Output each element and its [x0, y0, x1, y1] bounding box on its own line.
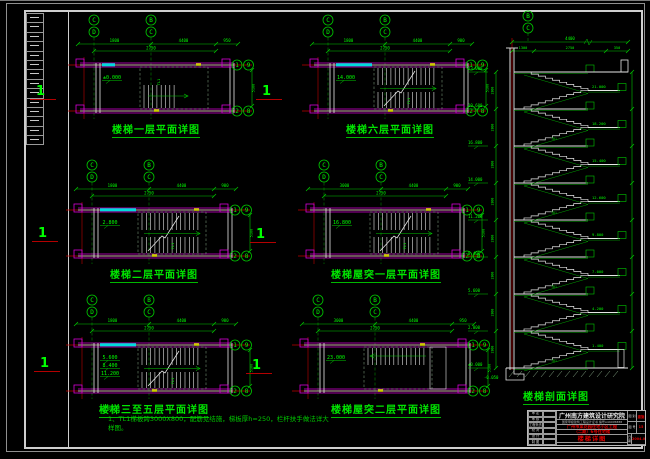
svg-text:5100: 5100: [252, 84, 256, 93]
drawing-title: 楼梯详图: [557, 435, 627, 443]
strip-cell: [26, 23, 44, 32]
cut-line: [250, 242, 276, 243]
svg-text:1: 1: [235, 62, 239, 69]
strip-cell: [26, 42, 44, 51]
svg-text:C: C: [92, 17, 96, 24]
field-label: 图 号: [628, 422, 636, 432]
svg-text:C: C: [326, 17, 330, 24]
svg-text:5.600: 5.600: [468, 288, 481, 293]
cut-line: [256, 99, 282, 100]
svg-text:14.000: 14.000: [468, 177, 483, 182]
notes-line: 1、TL1梯板跨3000X800，配筋见结施，梯板厚h=250，栏杆扶手做法详大…: [100, 415, 330, 435]
svg-text:D: D: [316, 309, 320, 316]
strip-cell: [26, 13, 44, 23]
svg-text:14.000: 14.000: [337, 75, 355, 81]
svg-text:2800: 2800: [491, 346, 495, 354]
svg-text:D: D: [326, 29, 330, 36]
strip-cell: [26, 108, 44, 117]
svg-text:7.000: 7.000: [592, 269, 604, 274]
svg-text:D: D: [322, 174, 326, 181]
annotations: TL1±0.000: [102, 63, 201, 112]
svg-text:C: C: [373, 309, 377, 316]
cut-line: [34, 371, 60, 372]
svg-text:2800: 2800: [491, 161, 495, 169]
svg-text:TB1: TB1: [551, 137, 557, 141]
svg-text:8.400: 8.400: [468, 251, 481, 256]
cut-number: 1: [252, 358, 261, 373]
revision-strip: [26, 13, 42, 145]
section-title: 楼梯剖面详图: [466, 388, 646, 403]
section-cut-mark: 1: [30, 86, 56, 104]
svg-text:TL1: TL1: [407, 98, 411, 105]
svg-text:2800: 2800: [491, 124, 495, 132]
svg-text:9.800: 9.800: [592, 232, 604, 237]
svg-text:1800: 1800: [110, 38, 120, 43]
plan-title: 楼梯六层平面详图: [290, 126, 490, 137]
cut-number: 1: [262, 84, 271, 99]
svg-text:21.000: 21.000: [592, 84, 606, 89]
plan-sixth-floor-drawing: 1800440090027505100TL114.000CDBC1928: [290, 13, 490, 125]
plan-sixth-floor: 1800440090027505100TL114.000CDBC1928 楼梯六…: [290, 13, 490, 137]
svg-text:2.800: 2.800: [102, 220, 117, 226]
svg-text:19.600: 19.600: [468, 103, 483, 108]
svg-text:D: D: [90, 174, 94, 181]
svg-text:4400: 4400: [565, 36, 575, 41]
notes-heading: 说明：: [100, 404, 330, 415]
strip-cell: [26, 117, 44, 126]
svg-text:C: C: [90, 162, 94, 169]
strip-cell: [26, 61, 44, 70]
svg-text:1800: 1800: [108, 318, 118, 323]
svg-text:900: 900: [221, 183, 229, 188]
svg-text:350: 350: [614, 46, 621, 50]
svg-text:2800: 2800: [491, 309, 495, 317]
svg-text:11.200: 11.200: [101, 371, 119, 377]
svg-text:2750: 2750: [144, 326, 154, 331]
section-cut-mark: 1: [32, 228, 58, 246]
section-cut-mark: 1: [256, 86, 282, 104]
section-cut-mark: 1: [246, 360, 272, 378]
grid-bubbles: CDBC1928: [319, 160, 484, 261]
strip-cell: [26, 33, 44, 42]
cut-line: [30, 99, 56, 100]
field-value: 2004.07: [631, 434, 645, 444]
field-value: 建施: [636, 411, 645, 421]
svg-text:8: 8: [247, 108, 251, 115]
svg-text:2750: 2750: [144, 191, 154, 196]
svg-text:900: 900: [453, 183, 461, 188]
grid-lines: [292, 318, 488, 400]
svg-text:B: B: [373, 297, 377, 304]
svg-text:3000: 3000: [340, 183, 350, 188]
svg-text:8: 8: [245, 388, 249, 395]
plan-roof2-floor: 300044009502750510023.000CDBC1928 楼梯屋突二层…: [280, 293, 492, 417]
window-top-edge: [0, 0, 650, 1]
svg-text:18.200: 18.200: [592, 121, 606, 126]
signature-cell: [543, 439, 556, 445]
plan-roof1-floor: 3000440090027505100TL116.800CDBC1928 楼梯屋…: [286, 158, 486, 282]
general-notes: 说明： 1、TL1梯板跨3000X800，配筋见结施，梯板厚h=250，栏杆扶手…: [100, 404, 330, 434]
svg-text:9: 9: [245, 342, 249, 349]
svg-text:2750: 2750: [146, 46, 156, 51]
svg-text:C: C: [322, 162, 326, 169]
svg-text:2750: 2750: [376, 191, 386, 196]
svg-text:900: 900: [457, 38, 465, 43]
plan-roof1-drawing: 3000440090027505100TL116.800CDBC1928: [286, 158, 486, 270]
plan-title: 楼梯一层平面详图: [56, 126, 256, 137]
svg-text:B: B: [383, 17, 387, 24]
svg-text:5.600: 5.600: [102, 355, 117, 361]
svg-text:TB1: TB1: [551, 285, 557, 289]
field-value: 15: [636, 422, 645, 432]
svg-text:±0.000: ±0.000: [468, 362, 483, 367]
svg-text:2.800: 2.800: [468, 325, 481, 330]
svg-text:23.000: 23.000: [468, 66, 483, 71]
svg-text:C: C: [147, 174, 151, 181]
svg-text:1: 1: [233, 342, 237, 349]
svg-text:TB1: TB1: [551, 211, 557, 215]
svg-text:2: 2: [233, 388, 237, 395]
svg-text:D: D: [90, 309, 94, 316]
svg-text:1300: 1300: [519, 46, 528, 50]
svg-text:D: D: [92, 29, 96, 36]
field-row: 图 别 建施: [628, 411, 645, 422]
svg-text:C: C: [383, 29, 387, 36]
svg-text:B: B: [147, 297, 151, 304]
role-label: 制 图: [528, 439, 543, 445]
svg-text:-0.050: -0.050: [484, 375, 499, 380]
plan-roof2-drawing: 300044009502750510023.000CDBC1928: [280, 293, 492, 405]
plan-title: 楼梯屋突一层平面详图: [286, 271, 486, 282]
annotations: 23.000: [326, 343, 425, 392]
plan-first-floor-drawing: 1800440095027505100TL1±0.000CDBC1928: [56, 13, 256, 125]
svg-text:11.200: 11.200: [468, 214, 483, 219]
svg-text:B: B: [379, 162, 383, 169]
strip-cell: [26, 127, 44, 136]
svg-text:2800: 2800: [491, 198, 495, 206]
svg-text:12.600: 12.600: [592, 195, 606, 200]
svg-text:8: 8: [245, 253, 249, 260]
cut-number: 1: [36, 84, 45, 99]
svg-text:C: C: [379, 174, 383, 181]
svg-text:2750: 2750: [566, 46, 575, 50]
title-block-role-labels: 审 定 审 核 工程负责 校 对 设 计 制 图: [528, 411, 543, 445]
cad-sheet: 1800440095027505100TL1±0.000CDBC1928 楼梯一…: [0, 0, 650, 459]
svg-text:TL1: TL1: [403, 243, 407, 250]
svg-text:4400: 4400: [179, 38, 189, 43]
svg-text:4400: 4400: [413, 38, 423, 43]
stair-section-drawing: 4400130027503502800280028002800280028002…: [466, 8, 646, 386]
grid-bubbles: BC: [523, 11, 533, 33]
svg-text:C: C: [147, 309, 151, 316]
field-row: 图 号 15: [628, 422, 645, 433]
svg-text:3000: 3000: [334, 318, 344, 323]
section-cut-mark: 1: [250, 229, 276, 247]
svg-text:1800: 1800: [108, 183, 118, 188]
svg-text:4.200: 4.200: [592, 306, 604, 311]
cut-number: 1: [40, 356, 49, 371]
plan-second-floor: 1800440090027505100TL12.800CDBC1928 楼梯二层…: [54, 158, 254, 282]
cut-number: 1: [256, 227, 265, 242]
plan-title: 楼梯二层平面详图: [54, 271, 254, 282]
title-block-main: 广州南方建筑设计研究院 国家甲级建筑工程设计证书 编号A44005888 广州市…: [556, 411, 627, 445]
svg-text:1: 1: [233, 207, 237, 214]
plan-3to5-drawing: 1800440090027505100TL15.6008.40011.200CD…: [54, 293, 254, 405]
stair-section-view: 4400130027503502800280028002800280028002…: [466, 8, 646, 403]
title-block-signature-cells: [543, 411, 556, 445]
svg-text:2750: 2750: [370, 326, 380, 331]
svg-text:2750: 2750: [380, 46, 390, 51]
svg-text:4400: 4400: [409, 183, 419, 188]
svg-text:TL1: TL1: [171, 378, 175, 385]
grid-bubbles: CDBC1928: [313, 295, 490, 396]
svg-text:9: 9: [247, 62, 251, 69]
svg-text:±0.000: ±0.000: [103, 75, 121, 81]
strip-cell: [26, 136, 44, 145]
svg-text:16.800: 16.800: [333, 220, 351, 226]
cut-number: 1: [38, 226, 47, 241]
svg-text:C: C: [316, 297, 320, 304]
svg-text:950: 950: [223, 38, 231, 43]
svg-text:1800: 1800: [344, 38, 354, 43]
svg-text:4400: 4400: [409, 318, 419, 323]
svg-text:15.400: 15.400: [592, 158, 606, 163]
title-block-fields: 图 别 建施 图 号 15 日 期 2004.07: [627, 411, 645, 445]
svg-text:23.000: 23.000: [327, 355, 345, 361]
svg-text:2: 2: [235, 108, 239, 115]
svg-text:2: 2: [233, 253, 237, 260]
cut-line: [246, 373, 272, 374]
svg-text:2800: 2800: [491, 235, 495, 243]
plan-second-floor-drawing: 1800440090027505100TL12.800CDBC1928: [54, 158, 254, 270]
svg-text:8.400: 8.400: [102, 363, 117, 369]
svg-text:B: B: [149, 17, 153, 24]
stair-flights: [364, 347, 446, 389]
svg-text:9: 9: [245, 207, 249, 214]
svg-text:B: B: [526, 13, 530, 20]
svg-text:2800: 2800: [491, 272, 495, 280]
strip-cell: [26, 70, 44, 79]
svg-text:16.800: 16.800: [468, 140, 483, 145]
field-label: 图 别: [628, 411, 636, 421]
svg-text:4400: 4400: [177, 183, 187, 188]
svg-text:C: C: [90, 297, 94, 304]
stair-flights: [140, 67, 208, 109]
svg-text:TB1: TB1: [551, 359, 557, 363]
plan-first-floor: 1800440095027505100TL1±0.000CDBC1928 楼梯一…: [56, 13, 256, 137]
svg-text:C: C: [526, 25, 530, 32]
svg-text:2800: 2800: [491, 87, 495, 95]
svg-text:B: B: [147, 162, 151, 169]
svg-text:4400: 4400: [177, 318, 187, 323]
svg-text:900: 900: [221, 318, 229, 323]
plan-floors-3to5: 1800440090027505100TL15.6008.40011.200CD…: [54, 293, 254, 417]
dimensions: 3000440095027505100: [300, 318, 492, 388]
svg-text:1.400: 1.400: [592, 343, 604, 348]
cut-line: [32, 241, 58, 242]
strip-cell: [26, 52, 44, 61]
title-block: 审 定 审 核 工程负责 校 对 设 计 制 图 广州南方建筑设计研究院 国家甲…: [527, 410, 646, 446]
svg-text:C: C: [149, 29, 153, 36]
field-row: 日 期 2004.07: [628, 434, 645, 445]
section-cut-mark: 1: [34, 358, 60, 376]
design-institute-name: 广州南方建筑设计研究院: [557, 411, 627, 420]
svg-text:TL1: TL1: [171, 243, 175, 250]
svg-text:TL1: TL1: [157, 79, 161, 86]
